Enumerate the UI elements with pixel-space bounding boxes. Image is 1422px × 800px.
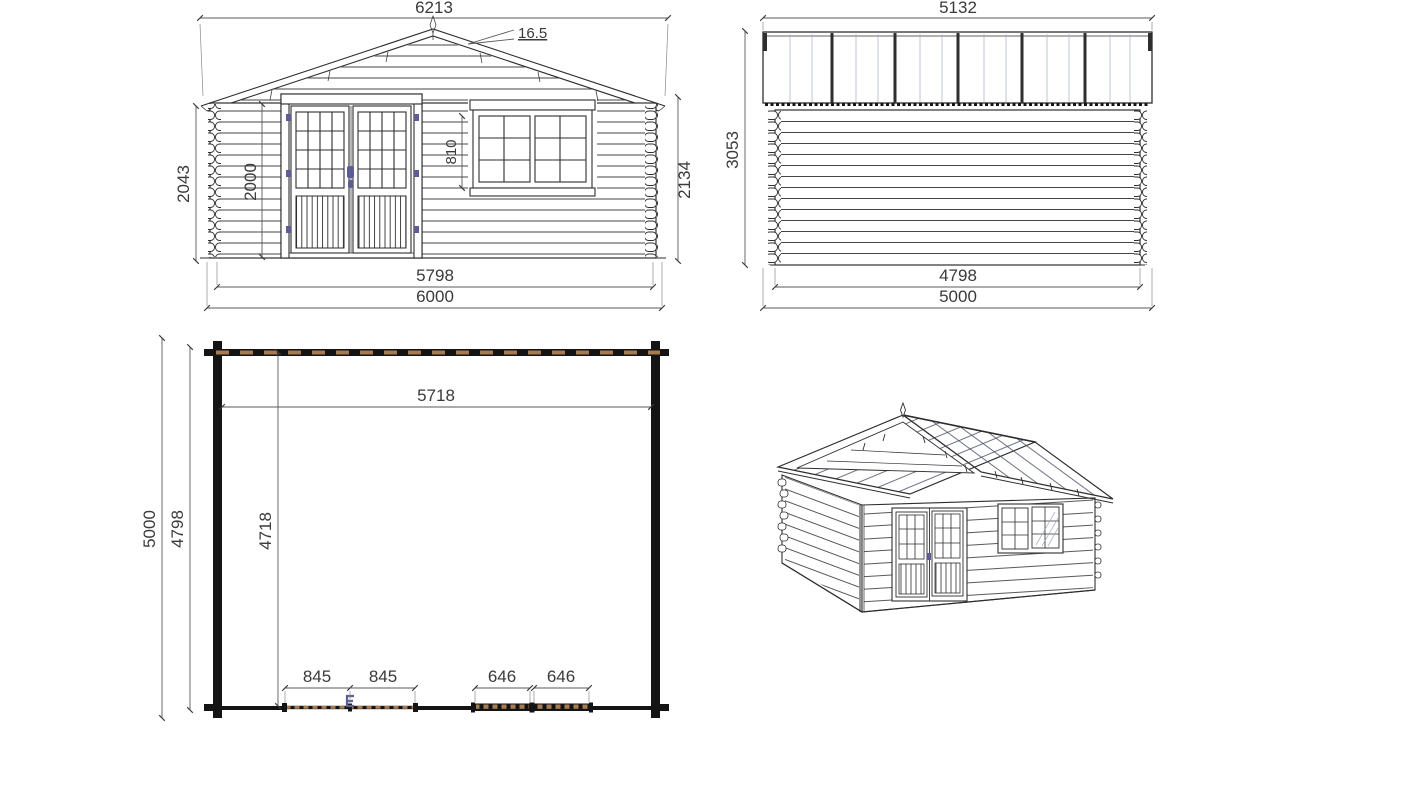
door-slats-left [296, 196, 344, 248]
dim-front-base-width: 5798 [217, 262, 653, 287]
iso-roof [778, 403, 1113, 503]
corner-log-ends-right [1134, 110, 1147, 265]
front-roof [201, 16, 665, 112]
front-elevation-view: 6213 16.5 [150, 0, 695, 322]
dim-label-wall-height-right: 2134 [675, 161, 694, 199]
dim-label-outer-depth: 5000 [140, 510, 159, 548]
iso-door-handle [927, 553, 931, 560]
dim-label-side-height: 3053 [723, 131, 742, 169]
dim-plan-windows: 646 646 [475, 667, 589, 702]
dim-label-side-base-width: 4798 [939, 266, 977, 285]
dim-roof-slope: 16.5 [468, 25, 547, 44]
dim-label-overall-width: 6000 [416, 287, 454, 306]
technical-drawing-canvas: 6213 16.5 [0, 0, 1422, 800]
dim-plan-inner-width: 5718 [222, 386, 651, 407]
door-slats-right [358, 196, 406, 248]
corner-log-ends-left [768, 110, 781, 265]
dim-plan-outer-depth: 5000 [140, 338, 162, 718]
door-glazing-right [358, 112, 406, 188]
dim-label-door-leaf-left: 845 [303, 667, 331, 686]
isometric-view [755, 395, 1145, 640]
plan-window-openings [471, 702, 593, 713]
door-handle [347, 166, 354, 188]
plan-wall-left [213, 341, 222, 718]
corner-log-ends-left [208, 104, 221, 257]
dim-plan-door-leaves: 845 845 [285, 667, 415, 703]
dim-label-side-overall-width: 5000 [939, 287, 977, 306]
dim-label-window-right: 646 [547, 667, 575, 686]
dim-label-door-leaf-right: 845 [369, 667, 397, 686]
dim-label-door-height: 2000 [241, 163, 260, 201]
plan-wall-right [651, 341, 660, 718]
dim-label-roof-width: 6213 [415, 0, 453, 17]
dim-plan-inner-depth: 4718 [256, 352, 278, 706]
dim-label-base-depth: 4798 [168, 510, 187, 548]
side-roof [763, 32, 1152, 105]
iso-double-door [892, 508, 967, 601]
dim-side-base-width: 4798 [775, 266, 1140, 287]
dim-side-height: 3053 [723, 31, 745, 265]
side-elevation-view: 5132 3053 [700, 0, 1170, 322]
iso-window [998, 504, 1063, 553]
dim-label-window-left: 646 [488, 667, 516, 686]
dim-label-window-height: 810 [443, 139, 460, 164]
dim-label-inner-depth: 4718 [256, 512, 275, 550]
front-window [468, 98, 597, 196]
dim-label-side-roof-width: 5132 [939, 0, 977, 17]
corner-log-ends-right [645, 104, 658, 257]
dim-label-wall-height-left: 2043 [174, 165, 193, 203]
dim-plan-base-depth: 4798 [168, 347, 190, 710]
dim-wall-height-right: 2134 [675, 97, 694, 261]
floor-plan-view: 5718 5000 4798 4718 845 845 646 646 [140, 325, 700, 757]
dim-label-base-width: 5798 [416, 266, 454, 285]
dim-wall-height-left: 2043 [174, 106, 196, 261]
front-double-door [281, 94, 422, 258]
dim-side-roof-width: 5132 [763, 0, 1152, 30]
side-wall [768, 110, 1147, 265]
door-glazing-left [296, 112, 344, 188]
dim-label-inner-width: 5718 [417, 386, 455, 405]
dim-label-roof-angle: 16.5 [518, 25, 547, 42]
